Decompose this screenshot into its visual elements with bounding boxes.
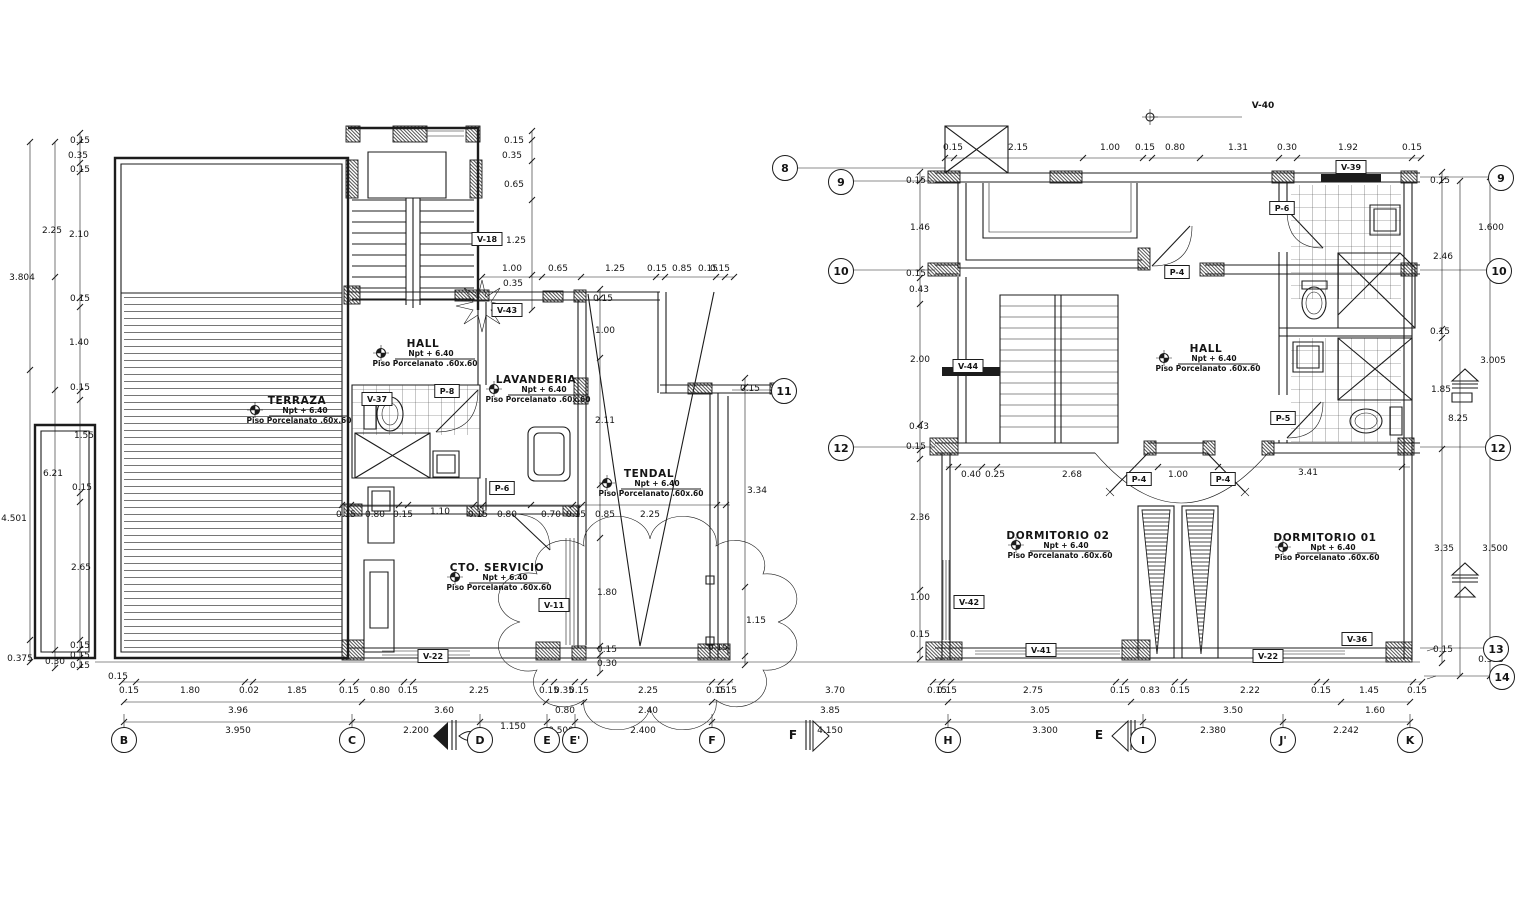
dim-label: 0.30	[597, 659, 617, 669]
dim-label: 0.35	[503, 279, 523, 289]
dim-label: 0.15	[70, 165, 90, 175]
dim-label: 1.00	[1168, 470, 1188, 480]
window-v11-lines	[566, 538, 574, 645]
dim-label: 3.005	[1480, 356, 1506, 366]
room-floor-finish: Piso Porcelanato .60x.60	[1156, 364, 1261, 373]
dim-label: 0.85	[595, 510, 615, 520]
dim-label: 1.45	[1359, 686, 1379, 696]
grid-bubble-label: F	[708, 734, 716, 747]
dim-label: 0.40	[961, 470, 981, 480]
grid-bubble-label: 10	[1491, 265, 1507, 278]
opening-tag-label: V-37	[367, 395, 387, 404]
dim-label: 0.15	[906, 176, 926, 186]
dim-label: 0.15	[906, 442, 926, 452]
opening-tag-label: P-4	[1132, 475, 1147, 484]
dim-label: 2.36	[910, 513, 930, 523]
dim-label: 1.60	[1365, 706, 1385, 716]
dim-label: 2.11	[595, 416, 615, 426]
dim-label: 4.150	[817, 726, 843, 736]
grid-bubble-label: 10	[833, 265, 849, 278]
dim-label: 0.15	[339, 686, 359, 696]
grid-bubble-label: D	[475, 734, 484, 747]
dim-label: 0.65	[548, 264, 568, 274]
dim-label: 0.15	[566, 510, 586, 520]
grid-bubble-label: B	[120, 734, 128, 747]
opening-tag-label: P-4	[1216, 475, 1231, 484]
dim-label: 3.85	[820, 706, 840, 716]
room-npt: Npt + 6.40	[1191, 354, 1236, 363]
dim-label: 0.15	[740, 384, 760, 394]
dim-label: 0.15	[1311, 686, 1331, 696]
dim-label: 0.80	[370, 686, 390, 696]
dim-label: 0.15	[593, 294, 613, 304]
dim-label: 0.15	[70, 383, 90, 393]
opening-tag-label: P-8	[440, 387, 455, 396]
dim-label: 2.40	[638, 706, 658, 716]
dim-label: 2.25	[42, 226, 62, 236]
dim-label: 0.15	[710, 264, 730, 274]
dim-label: 0.15	[504, 136, 524, 146]
dim-label: 0.35	[502, 151, 522, 161]
dim-label: 0.85	[672, 264, 692, 274]
room-floor-finish: Piso Porcelanato .60x.60	[373, 359, 478, 368]
dim-label: 0.15	[1402, 143, 1422, 153]
dim-label: 2.65	[71, 563, 91, 573]
dim-label: 0.15	[72, 483, 92, 493]
dim-label: 0.15	[708, 643, 728, 653]
grid-bubble-label: 12	[833, 442, 848, 455]
dim-label: 0.15	[70, 136, 90, 146]
dim-label: 0.15	[70, 661, 90, 671]
dim-label: 2.242	[1333, 726, 1359, 736]
dim-label: 0.15	[1135, 143, 1155, 153]
dim-label: 1.31	[1228, 143, 1248, 153]
dim-label: 3.950	[225, 726, 251, 736]
dim-label: 0.15	[1110, 686, 1130, 696]
grid-bubble-label: E	[543, 734, 551, 747]
room-floor-finish: Piso Porcelanato .60x.60	[599, 489, 704, 498]
dim-label: 0.15	[70, 641, 90, 651]
window-v39-sill	[1321, 174, 1381, 182]
dim-label: 0.43	[909, 422, 929, 432]
dim-label: 2.25	[469, 686, 489, 696]
grid-bubble-label: 9	[1497, 172, 1505, 185]
dim-label: 1.00	[910, 593, 930, 603]
dim-label: 1.46	[910, 223, 930, 233]
room-npt: Npt + 6.40	[1043, 541, 1088, 550]
dim-label: 0.30	[1277, 143, 1297, 153]
dim-label: 1.80	[597, 588, 617, 598]
opening-tag-label: P-4	[1170, 268, 1185, 277]
dim-label: 0.15	[119, 686, 139, 696]
cad-floorplan-sheet: 0.151.800.021.850.150.800.152.250.150.35…	[0, 0, 1536, 906]
dim-label: 2.68	[1062, 470, 1082, 480]
dim-label: 1.55	[74, 431, 94, 441]
opening-tag-label: V-18	[477, 235, 497, 244]
dim-label: 0.25	[985, 470, 1005, 480]
room-npt: Npt + 6.40	[482, 573, 527, 582]
grid-bubble-label: J'	[1278, 734, 1286, 747]
dim-label: 2.25	[638, 686, 658, 696]
dim-label: 0.65	[504, 180, 524, 190]
dim-label: 3.60	[434, 706, 454, 716]
opening-tag-label: V-22	[1258, 652, 1278, 661]
dim-label: 3.05	[1030, 706, 1050, 716]
dim-label: 1.00	[1100, 143, 1120, 153]
opening-tag-label: V-44	[958, 362, 978, 371]
grid-bubble-label: 14	[1494, 671, 1510, 684]
dim-label: 0.15	[647, 264, 667, 274]
dim-label: 1.10	[430, 507, 450, 517]
dim-label: 3.96	[228, 706, 248, 716]
dim-label: 8.25	[1448, 414, 1468, 424]
room-npt: Npt + 6.40	[521, 385, 566, 394]
dim-label: 3.300	[1032, 726, 1058, 736]
grid-bubble-label: 12	[1490, 442, 1505, 455]
dim-label: 0.15	[70, 651, 90, 661]
section-marker-letter: E	[1095, 728, 1103, 742]
opening-tag-label: V-43	[497, 306, 517, 315]
dim-label: 0.15	[910, 630, 930, 640]
elevation-markers	[1452, 369, 1478, 597]
grid-bubble-label: 11	[776, 385, 791, 398]
dim-label: 0.80	[1165, 143, 1185, 153]
dim-label: 0.15	[597, 645, 617, 655]
dim-label: 3.804	[9, 273, 35, 283]
opening-tag-label: V-11	[544, 601, 564, 610]
grid-bubble-label: C	[348, 734, 356, 747]
dim-label: 2.46	[1433, 252, 1453, 262]
dim-label: 0.15	[1433, 645, 1453, 655]
dim-label: 1.600	[1478, 223, 1504, 233]
dim-label: 0.15	[569, 686, 589, 696]
room-floor-finish: Piso Porcelanato .60x.60	[1008, 551, 1113, 560]
dim-label: 0.15	[717, 686, 737, 696]
dim-label: 0.15	[70, 294, 90, 304]
dim-label: 0.15	[1430, 327, 1450, 337]
opening-tag-label: P-6	[1275, 204, 1290, 213]
dim-label: 0.15	[336, 510, 356, 520]
dim-label: 0.15	[906, 269, 926, 279]
left-plan-walls	[35, 126, 1420, 730]
dim-label: 3.35	[1434, 544, 1454, 554]
grid-bubble-label: K	[1406, 734, 1415, 747]
dim-label: 2.15	[1008, 143, 1028, 153]
dim-label: 3.34	[747, 486, 767, 496]
room-npt: Npt + 6.40	[1310, 543, 1355, 552]
dim-label: 1.85	[1431, 385, 1451, 395]
dim-label: 0.15	[943, 143, 963, 153]
dim-label: 1.80	[180, 686, 200, 696]
grid-bubble-label: H	[943, 734, 952, 747]
grid-bubble-label: E'	[570, 734, 581, 747]
dim-label: 0.375	[7, 654, 33, 664]
dim-label: 0.15	[937, 686, 957, 696]
dim-label: 0.15	[468, 510, 488, 520]
dim-label: 2.10	[69, 230, 89, 240]
dim-label: 2.380	[1200, 726, 1226, 736]
dim-label: 1.150	[500, 722, 526, 732]
grid-bubble-label: 13	[1488, 643, 1503, 656]
grid-bubble-label: I	[1141, 734, 1145, 747]
dim-label: 2.00	[910, 355, 930, 365]
opening-tag-label: V-36	[1347, 635, 1367, 644]
dim-label: 3.70	[825, 686, 845, 696]
opening-tag-label: P-6	[495, 484, 510, 493]
right-plan-walls	[732, 109, 1489, 679]
dim-label: 0.80	[365, 510, 385, 520]
dim-label: 1.00	[595, 326, 615, 336]
opening-tag-label: V-22	[423, 652, 443, 661]
dim-label: 0.15	[393, 510, 413, 520]
room-npt: Npt + 6.40	[634, 479, 679, 488]
dim-label: 3.50	[1223, 706, 1243, 716]
room-floor-finish: Piso Porcelanato .60x.60	[1275, 553, 1380, 562]
room-floor-finish: Piso Porcelanato .60x.60	[247, 416, 352, 425]
dim-label: 1.00	[502, 264, 522, 274]
dim-label: 4.501	[1, 514, 27, 524]
shower	[355, 433, 430, 478]
dim-label: 0.35	[68, 151, 88, 161]
dim-label: 1.25	[506, 236, 526, 246]
window-annotation: V-40	[1252, 101, 1275, 111]
dim-label: 0.15	[1407, 686, 1427, 696]
room-npt: Npt + 6.40	[408, 349, 453, 358]
dim-label: 0.70	[541, 510, 561, 520]
dim-label: 2.400	[630, 726, 656, 736]
opening-tag-label: V-41	[1031, 646, 1051, 655]
dim-label: 0.83	[1140, 686, 1160, 696]
dim-label: 1.40	[69, 338, 89, 348]
dim-label: 3.500	[1482, 544, 1508, 554]
opening-tag-label: V-42	[959, 598, 979, 607]
grid-bubble-label: 8	[781, 162, 789, 175]
opening-tag-label: P-5	[1276, 414, 1291, 423]
dim-label: 0.15	[1430, 176, 1450, 186]
dim-label: 1.85	[287, 686, 307, 696]
dim-label: 0.15	[1170, 686, 1190, 696]
dim-label: 0.02	[239, 686, 259, 696]
dim-label: 2.75	[1023, 686, 1043, 696]
room-floor-finish: Piso Porcelanato .60x.60	[486, 395, 591, 404]
dim-label: 0.80	[555, 706, 575, 716]
dim-label: 1.15	[746, 616, 766, 626]
room-npt: Npt + 6.40	[282, 406, 327, 415]
room-floor-finish: Piso Porcelanato .60x.60	[447, 583, 552, 592]
dim-label: 0.15	[108, 672, 128, 682]
dim-label: 0.15	[398, 686, 418, 696]
dim-label: 3.41	[1298, 468, 1318, 478]
floorplan-canvas: 0.151.800.021.850.150.800.152.250.150.35…	[0, 0, 1536, 906]
dim-label: 2.200	[403, 726, 429, 736]
dim-label: 0.30	[45, 657, 65, 667]
dim-label: 0.43	[909, 285, 929, 295]
terraza-deck-hatch	[124, 293, 342, 649]
section-marker-letter: F	[789, 728, 797, 742]
dim-label: 2.25	[640, 510, 660, 520]
dim-label: 1.25	[605, 264, 625, 274]
dim-label: 6.21	[43, 469, 63, 479]
grid-bubble-label: 9	[837, 176, 845, 189]
dim-label: 0.80	[497, 510, 517, 520]
dim-label: 2.22	[1240, 686, 1260, 696]
opening-tag-label: V-39	[1341, 163, 1361, 172]
dim-label: 1.92	[1338, 143, 1358, 153]
